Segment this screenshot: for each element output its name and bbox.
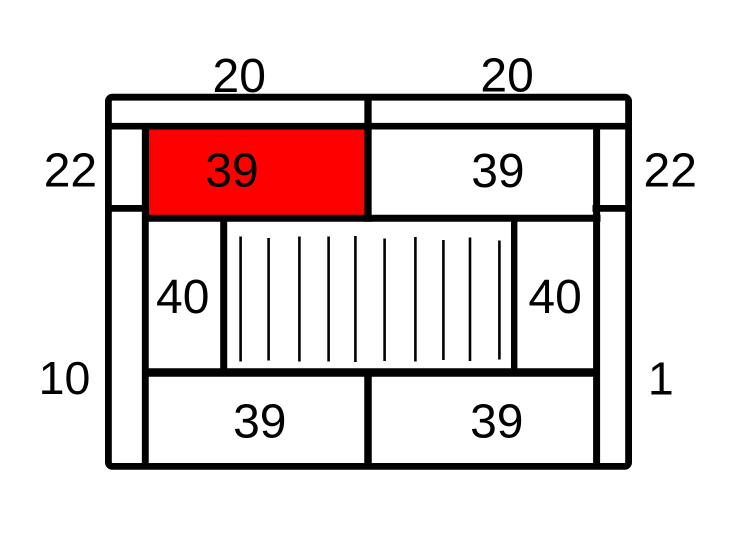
- svg-text:39: 39: [205, 145, 258, 198]
- svg-text:22: 22: [44, 144, 97, 197]
- svg-text:39: 39: [471, 145, 524, 198]
- svg-text:39: 39: [470, 395, 523, 448]
- svg-text:39: 39: [233, 395, 286, 448]
- svg-text:40: 40: [156, 271, 209, 324]
- svg-text:10: 10: [39, 352, 91, 404]
- svg-text:40: 40: [528, 271, 581, 324]
- svg-text:20: 20: [213, 50, 266, 103]
- svg-text:1: 1: [648, 353, 674, 405]
- svg-text:20: 20: [480, 50, 533, 103]
- svg-text:22: 22: [644, 144, 697, 197]
